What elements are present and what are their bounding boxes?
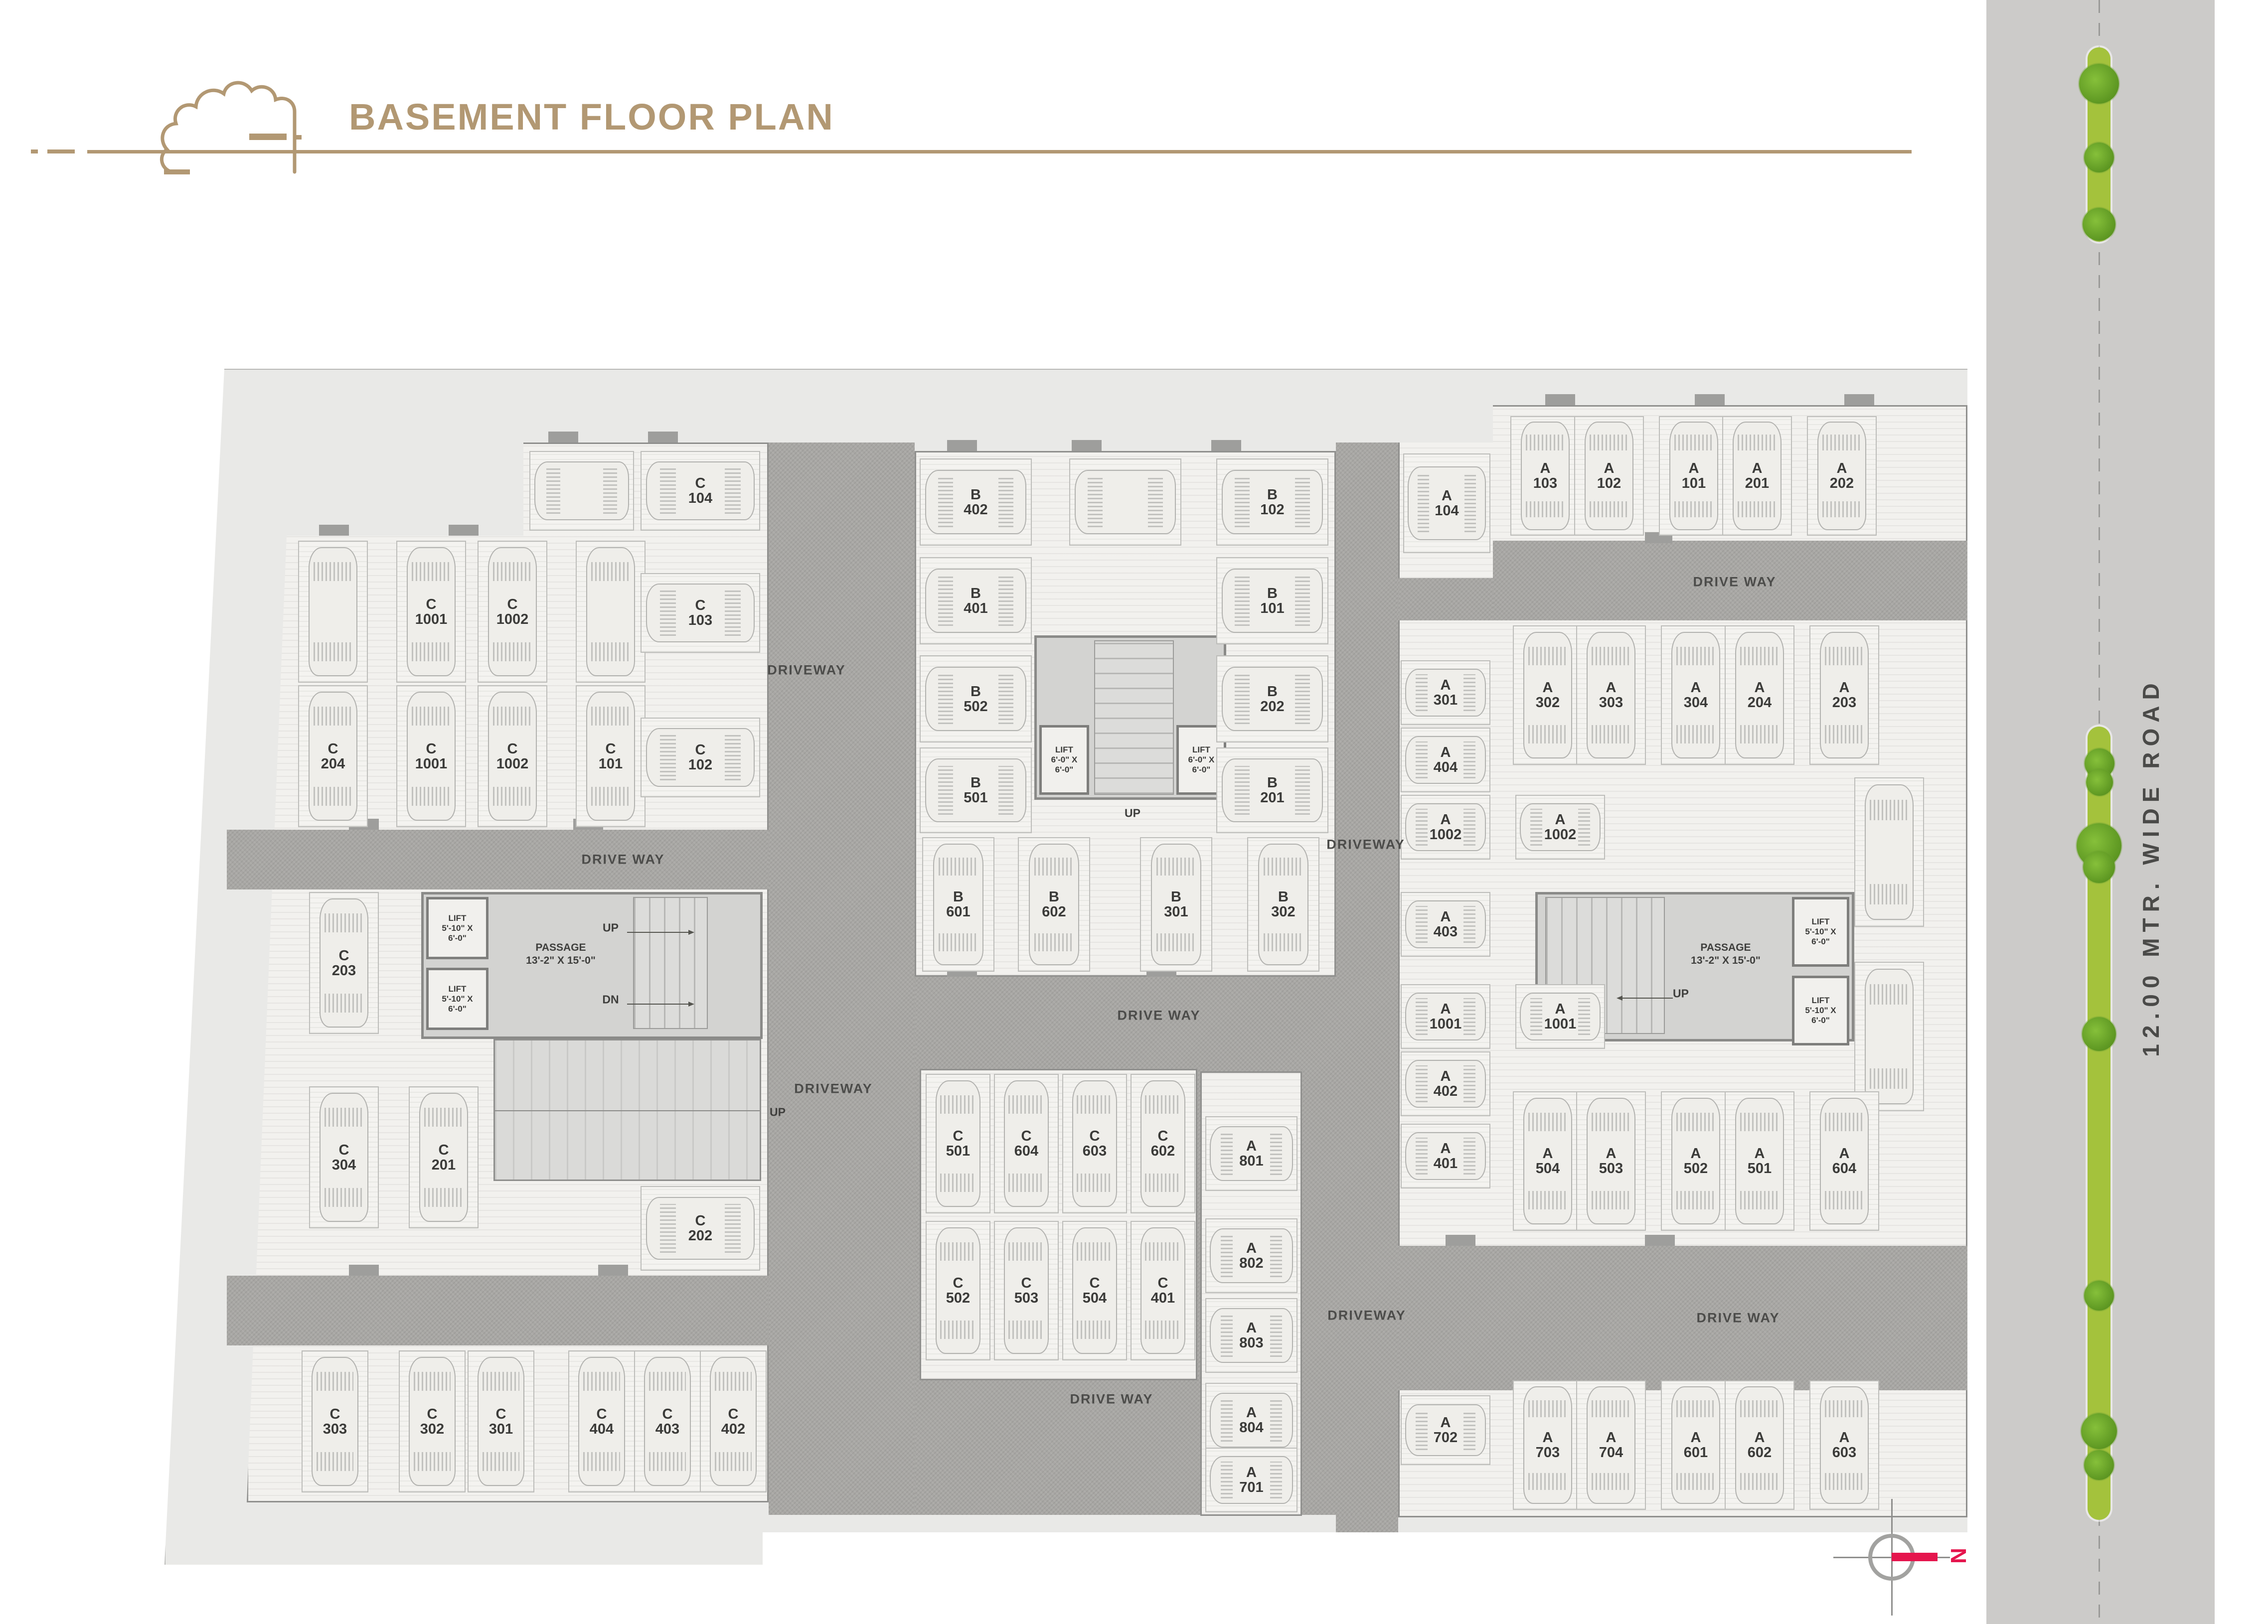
parking-stall-label: C 201 bbox=[432, 1143, 456, 1173]
parking-stall-label: A 501 bbox=[1748, 1146, 1772, 1176]
car-icon bbox=[1865, 969, 1914, 1104]
driveway-label: DRIVEWAY bbox=[767, 663, 846, 678]
column-marker bbox=[598, 1265, 628, 1276]
car-icon bbox=[534, 461, 629, 521]
driveway-band bbox=[227, 1276, 769, 1345]
parking-stall-label: A 703 bbox=[1536, 1430, 1560, 1460]
parking-stall-label: B 101 bbox=[1260, 586, 1284, 616]
floor-plan: LIFT 5'-10" X 6'-0"LIFT 5'-10" X 6'-0"LI… bbox=[0, 0, 2268, 1624]
direction-arrow bbox=[627, 932, 692, 933]
car-icon bbox=[1075, 470, 1176, 535]
parking-stall-label: A 202 bbox=[1830, 461, 1854, 491]
parking-stall-label: A 203 bbox=[1832, 680, 1856, 710]
parking-stall-label: A 104 bbox=[1435, 488, 1458, 518]
parking-stall-label: A 303 bbox=[1599, 680, 1623, 710]
parking-stall-label: A 401 bbox=[1434, 1141, 1458, 1171]
parking-stall-label: A 204 bbox=[1748, 680, 1772, 710]
parking-stall-label: C 603 bbox=[1083, 1129, 1107, 1159]
parking-stall-label: C 404 bbox=[590, 1407, 614, 1437]
column-marker bbox=[1645, 1235, 1675, 1246]
parking-stall-label: A 304 bbox=[1684, 680, 1708, 710]
parking-stall-label: A 503 bbox=[1599, 1146, 1623, 1176]
column-marker bbox=[1545, 394, 1575, 405]
parking-stall-label: C 103 bbox=[688, 598, 712, 628]
parking-stall-label: A 302 bbox=[1536, 680, 1560, 710]
column-marker bbox=[1695, 394, 1725, 405]
direction-arrow bbox=[1619, 998, 1673, 999]
lift-box: LIFT 5'-10" X 6'-0" bbox=[1792, 976, 1849, 1045]
parking-stall-label: C 503 bbox=[1014, 1276, 1038, 1306]
parking-stall-label: A 601 bbox=[1684, 1430, 1708, 1460]
column-marker bbox=[349, 1265, 379, 1276]
lift-label: LIFT 5'-10" X 6'-0" bbox=[1805, 996, 1836, 1026]
parking-stall-label: C 602 bbox=[1151, 1129, 1175, 1159]
parking-stall-label: B 402 bbox=[964, 487, 987, 517]
parking-stall-label: C 204 bbox=[321, 741, 345, 771]
driveway-label: DRIVEWAY bbox=[1326, 837, 1405, 853]
parking-stall-label: A 704 bbox=[1599, 1430, 1623, 1460]
parking-stall-label: C 104 bbox=[688, 476, 712, 506]
driveway-label: DRIVEWAY bbox=[1327, 1308, 1406, 1324]
driveway-band bbox=[1398, 578, 1493, 620]
driveway-label: DRIVEWAY bbox=[794, 1081, 873, 1097]
parking-stall bbox=[1069, 458, 1181, 546]
parking-stall-label: A 802 bbox=[1239, 1241, 1263, 1271]
driveway-band bbox=[1398, 1246, 1967, 1390]
parking-stall-label: B 102 bbox=[1260, 487, 1284, 517]
parking-stall-label: C 302 bbox=[420, 1407, 444, 1437]
driveway-label: DRIVE WAY bbox=[581, 852, 664, 868]
parking-stall-label: B 502 bbox=[964, 684, 987, 714]
stair-direction-label: UP bbox=[1673, 987, 1689, 1001]
basement-floor-plan-page: BASEMENT FLOOR PLAN 12.00 MTR. WIDE ROAD… bbox=[0, 0, 2268, 1624]
driveway-band bbox=[227, 830, 769, 889]
parking-stall-label: A 301 bbox=[1434, 678, 1458, 708]
parking-stall-label: A 404 bbox=[1434, 745, 1458, 775]
stair-direction-label: UP bbox=[1125, 807, 1140, 820]
parking-stall-label: C 303 bbox=[323, 1407, 347, 1437]
parking-stall bbox=[298, 541, 368, 683]
parking-stall-label: A 1001 bbox=[1430, 1002, 1462, 1032]
parking-stall-label: A 604 bbox=[1832, 1146, 1856, 1176]
parking-stall-label: A 402 bbox=[1434, 1069, 1458, 1099]
driveway bbox=[769, 443, 915, 1515]
parking-stall-label: C 502 bbox=[946, 1276, 970, 1306]
parking-stall-label: C 604 bbox=[1014, 1129, 1038, 1159]
parking-stall-label: C 203 bbox=[332, 948, 356, 978]
parking-stall-label: C 301 bbox=[489, 1407, 513, 1437]
parking-stall-label: A 803 bbox=[1239, 1321, 1263, 1350]
column-marker bbox=[1211, 440, 1241, 451]
car-icon bbox=[586, 547, 635, 676]
parking-stall-label: C 304 bbox=[332, 1143, 356, 1173]
parking-stall-label: B 601 bbox=[946, 889, 970, 919]
parking-stall-label: B 202 bbox=[1260, 684, 1284, 714]
car-icon bbox=[309, 547, 357, 676]
stair-direction-label: UP bbox=[770, 1106, 786, 1119]
lift-label: LIFT 5'-10" X 6'-0" bbox=[1805, 917, 1836, 947]
column-marker bbox=[1844, 394, 1874, 405]
parking-stall-label: A 101 bbox=[1682, 461, 1706, 491]
parking-stall-label: C 101 bbox=[599, 741, 623, 771]
parking-stall-label: A 603 bbox=[1832, 1430, 1856, 1460]
parking-stall-label: A 702 bbox=[1434, 1415, 1458, 1445]
parking-stall-label: A 502 bbox=[1684, 1146, 1708, 1176]
stair-direction-label: UP bbox=[603, 921, 619, 935]
parking-stall-label: B 201 bbox=[1260, 775, 1284, 805]
column-marker bbox=[1446, 1235, 1475, 1246]
parking-stall-label: A 804 bbox=[1239, 1405, 1263, 1435]
staircase-treads bbox=[1094, 640, 1174, 795]
parking-stall-label: B 302 bbox=[1271, 889, 1295, 919]
parking-stall bbox=[1854, 962, 1924, 1111]
parking-stall-label: C 402 bbox=[721, 1407, 745, 1437]
lift-label: LIFT 5'-10" X 6'-0" bbox=[442, 913, 473, 943]
parking-stall-label: C 102 bbox=[688, 742, 712, 772]
parking-stall-label: A 1001 bbox=[1544, 1002, 1577, 1032]
driveway-label: DRIVE WAY bbox=[1693, 575, 1776, 590]
parking-stall bbox=[529, 451, 634, 531]
parking-stall-label: C 401 bbox=[1151, 1276, 1175, 1306]
parking-stall-label: C 403 bbox=[655, 1407, 679, 1437]
parking-stall-label: A 403 bbox=[1434, 909, 1458, 939]
driveway-label: DRIVE WAY bbox=[1070, 1392, 1153, 1407]
lift-label: LIFT 6'-0" X 6'-0" bbox=[1051, 745, 1078, 775]
car-icon bbox=[1865, 784, 1914, 920]
parking-stall-label: B 501 bbox=[964, 775, 987, 805]
column-marker bbox=[548, 432, 578, 443]
lift-box: LIFT 6'-0" X 6'-0" bbox=[1039, 725, 1089, 795]
parking-stall-label: C 202 bbox=[688, 1213, 712, 1243]
lift-label: LIFT 6'-0" X 6'-0" bbox=[1188, 745, 1215, 775]
column-marker bbox=[648, 432, 678, 443]
driveway-label: DRIVE WAY bbox=[1117, 1008, 1200, 1024]
stair-direction-label: DN bbox=[602, 993, 619, 1007]
parking-stall-label: A 701 bbox=[1239, 1465, 1263, 1495]
parking-stall-label: A 801 bbox=[1239, 1139, 1263, 1169]
parking-stall-label: A 1002 bbox=[1430, 812, 1462, 842]
parking-stall bbox=[576, 541, 646, 683]
parking-stall-label: C 1001 bbox=[415, 597, 448, 627]
compass-north-label: N bbox=[1945, 1548, 1970, 1564]
parking-stall-label: A 602 bbox=[1748, 1430, 1772, 1460]
parking-stall-label: B 602 bbox=[1042, 889, 1066, 919]
column-marker bbox=[947, 440, 977, 451]
passage-label: PASSAGE 13'-2" X 15'-0" bbox=[1691, 941, 1761, 967]
parking-stall-label: C 1002 bbox=[496, 741, 529, 771]
compass-needle bbox=[1892, 1553, 1938, 1561]
column-marker bbox=[319, 525, 349, 536]
direction-arrow bbox=[627, 1004, 692, 1005]
staircase-treads bbox=[633, 897, 708, 1029]
passage-label: PASSAGE 13'-2" X 15'-0" bbox=[526, 941, 596, 967]
column-marker bbox=[449, 525, 479, 536]
parking-stall-label: C 1002 bbox=[496, 597, 529, 627]
parking-stall-label: A 1002 bbox=[1544, 812, 1577, 842]
column-marker bbox=[1072, 440, 1102, 451]
parking-stall-label: A 103 bbox=[1533, 461, 1557, 491]
parking-stall-label: A 102 bbox=[1597, 461, 1621, 491]
ramp bbox=[493, 1039, 761, 1181]
lift-label: LIFT 5'-10" X 6'-0" bbox=[442, 984, 473, 1014]
lift-box: LIFT 5'-10" X 6'-0" bbox=[1792, 897, 1849, 967]
parking-stall-label: C 1001 bbox=[415, 741, 448, 771]
driveway-label: DRIVE WAY bbox=[1696, 1311, 1780, 1326]
parking-stall-label: C 501 bbox=[946, 1129, 970, 1159]
parking-stall-label: A 201 bbox=[1745, 461, 1769, 491]
lift-box: LIFT 5'-10" X 6'-0" bbox=[426, 897, 488, 959]
parking-stall-label: C 504 bbox=[1083, 1276, 1107, 1306]
parking-stall bbox=[1854, 777, 1924, 927]
parking-stall-label: B 401 bbox=[964, 586, 987, 616]
lift-box: LIFT 5'-10" X 6'-0" bbox=[426, 968, 488, 1030]
parking-stall-label: B 301 bbox=[1164, 889, 1188, 919]
parking-stall-label: A 504 bbox=[1536, 1146, 1560, 1176]
